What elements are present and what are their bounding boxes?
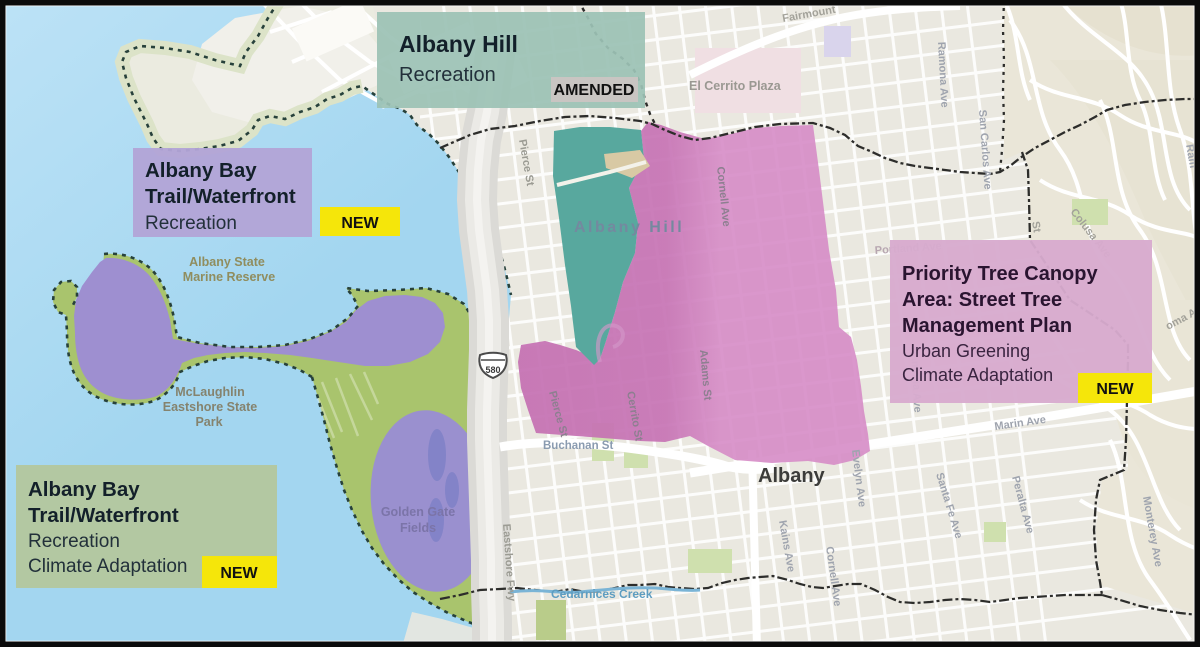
- svg-text:McLaughlin: McLaughlin: [175, 385, 244, 399]
- svg-text:Fields: Fields: [400, 521, 436, 535]
- svg-text:Buchanan St: Buchanan St: [543, 440, 613, 452]
- svg-text:Trail/Waterfront: Trail/Waterfront: [28, 504, 179, 527]
- svg-text:El Cerrito Plaza: El Cerrito Plaza: [689, 79, 782, 93]
- svg-text:NEW: NEW: [220, 565, 258, 582]
- svg-text:Albany Hill: Albany Hill: [399, 31, 518, 57]
- svg-text:580: 580: [485, 365, 500, 375]
- svg-text:Trail/Waterfront: Trail/Waterfront: [145, 185, 296, 208]
- svg-text:Marine Reserve: Marine Reserve: [183, 270, 275, 284]
- svg-text:Climate Adaptation: Climate Adaptation: [28, 556, 188, 577]
- svg-text:Cedarnices Creek: Cedarnices Creek: [551, 587, 653, 601]
- svg-text:Recreation: Recreation: [399, 64, 496, 86]
- svg-text:Albany Bay: Albany Bay: [145, 159, 257, 182]
- svg-text:Climate Adaptation: Climate Adaptation: [902, 365, 1053, 385]
- svg-text:Park: Park: [195, 415, 222, 429]
- svg-text:Albany: Albany: [758, 465, 826, 487]
- svg-text:Recreation: Recreation: [28, 531, 120, 552]
- svg-text:Albany Bay: Albany Bay: [28, 478, 140, 501]
- svg-text:Eastshore State: Eastshore State: [163, 400, 258, 414]
- svg-text:Management Plan: Management Plan: [902, 315, 1072, 337]
- svg-text:NEW: NEW: [1096, 381, 1134, 398]
- svg-text:Albany Hill: Albany Hill: [574, 219, 684, 236]
- svg-text:Golden Gate: Golden Gate: [381, 505, 455, 519]
- svg-text:AMENDED: AMENDED: [554, 82, 635, 99]
- svg-text:Albany State: Albany State: [189, 255, 265, 269]
- svg-text:NEW: NEW: [341, 215, 379, 232]
- svg-text:Urban Greening: Urban Greening: [902, 341, 1030, 361]
- svg-text:Priority Tree Canopy: Priority Tree Canopy: [902, 263, 1098, 285]
- svg-text:Recreation: Recreation: [145, 213, 237, 234]
- svg-text:Area: Street Tree: Area: Street Tree: [902, 289, 1062, 311]
